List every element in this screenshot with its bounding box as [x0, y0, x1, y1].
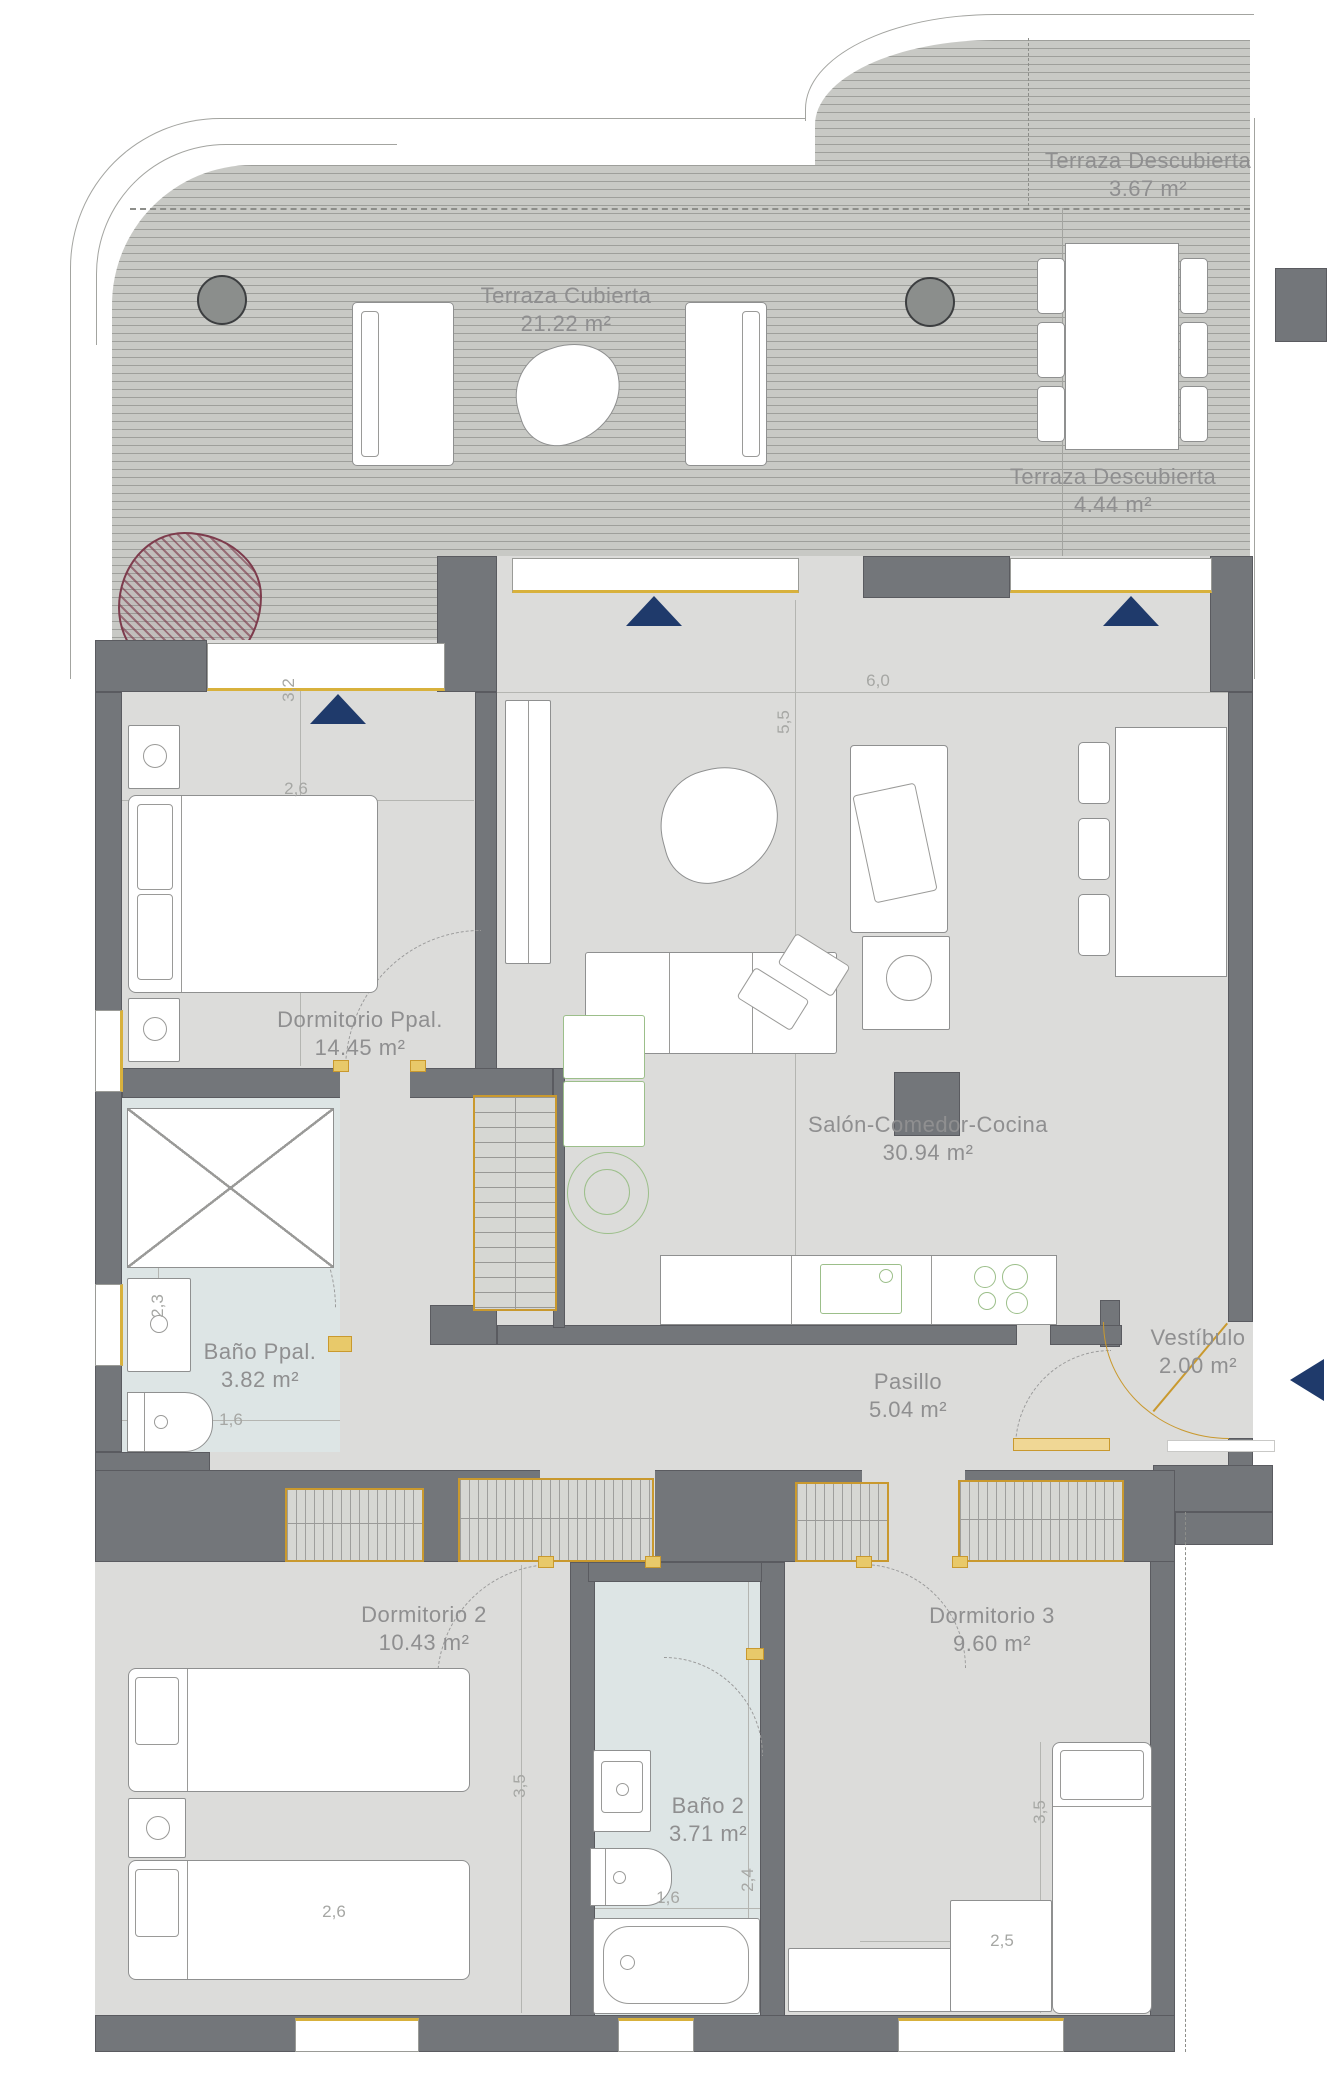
kitchen-appliance: [563, 1015, 645, 1079]
side-table: [862, 936, 950, 1030]
chair: [1078, 894, 1110, 956]
door-hinge: [952, 1556, 968, 1568]
wall: [570, 1562, 595, 2017]
door-hinge: [746, 1648, 764, 1660]
terrace-chair: [1037, 386, 1065, 442]
window-triangle-icon: [310, 694, 366, 724]
dimension-text: 3,5: [510, 1774, 530, 1798]
bed-single: [128, 1668, 470, 1792]
wall: [437, 556, 497, 692]
bathtub: [593, 1918, 760, 2014]
window: [207, 643, 445, 691]
room-label-dormitorio-3: Dormitorio 39.60 m²: [929, 1602, 1055, 1658]
lounge-chair: [850, 745, 948, 933]
dim-line: [593, 1908, 762, 1909]
toilet: [127, 1392, 213, 1452]
terrace-dining-table: [1065, 243, 1179, 450]
wall: [95, 640, 207, 692]
bed-double: [128, 795, 378, 993]
terrace-chair: [1037, 322, 1065, 378]
bed-single: [128, 1860, 470, 1980]
floor-plan: Terraza Descubierta3.67 m² Terraza Cubie…: [0, 0, 1327, 2088]
wall: [1150, 1512, 1175, 2052]
room-label-terraza-cubierta: Terraza Cubierta21.22 m²: [481, 282, 652, 338]
window: [898, 2018, 1064, 2052]
wall: [1210, 556, 1253, 692]
window: [512, 558, 799, 593]
dimension-text: 2,3: [148, 1294, 168, 1318]
dim-line: [497, 692, 1228, 693]
terrace-boundary-dash: [1028, 38, 1029, 206]
window-triangle-icon: [626, 596, 682, 626]
bathroom-sink: [593, 1750, 651, 1832]
door-leaf: [1013, 1438, 1110, 1451]
dimension-text: 2,4: [738, 1868, 758, 1892]
exterior-face-dash: [1185, 1512, 1186, 2052]
door-hinge: [645, 1556, 661, 1568]
wardrobe: [795, 1482, 889, 1562]
terrace-chair: [1180, 386, 1208, 442]
kitchen-sink: [820, 1264, 902, 1314]
wardrobe-hall: [473, 1095, 557, 1311]
chair: [1078, 742, 1110, 804]
terrace-armchair: [685, 302, 767, 466]
entrance-arrow-icon: [1290, 1359, 1324, 1401]
dimension-text: 2,6: [322, 1902, 346, 1922]
chair: [1078, 818, 1110, 880]
kitchen-appliance: [563, 1081, 645, 1147]
wall: [1228, 692, 1253, 1322]
wall: [497, 1325, 1017, 1345]
bed-single: [1052, 1742, 1152, 2014]
wall: [760, 1562, 785, 2017]
terrace-chair: [1037, 258, 1065, 314]
window: [95, 1010, 123, 1092]
dimension-text: 6,0: [866, 671, 890, 691]
dimension-text: 3,2: [279, 678, 299, 702]
room-label-terraza-descubierta-1: Terraza Descubierta3.67 m²: [1045, 147, 1251, 203]
desk-return: [950, 1900, 1052, 2012]
nightstand: [128, 1798, 186, 1858]
window: [95, 1284, 123, 1366]
room-label-terraza-descubierta-2: Terraza Descubierta4.44 m²: [1010, 463, 1216, 519]
wall: [122, 1068, 553, 1098]
terrace-chair: [1180, 322, 1208, 378]
terrace-cover-boundary: [130, 208, 1250, 210]
window-triangle-icon: [1103, 596, 1159, 626]
dining-table: [1115, 727, 1227, 977]
neighbor-wall-block: [1275, 268, 1327, 342]
entry-threshold: [1167, 1440, 1275, 1452]
desk: [788, 1948, 960, 2012]
wall-pillar: [863, 556, 1010, 598]
washing-machine: [567, 1152, 649, 1234]
wall: [430, 1305, 497, 1345]
dimension-text: 2,6: [284, 779, 308, 799]
sideboard: [505, 700, 551, 964]
room-label-salon: Salón-Comedor-Cocina30.94 m²: [808, 1111, 1048, 1167]
door-hinge: [538, 1556, 554, 1568]
window: [1010, 558, 1212, 593]
bathroom-sink: [127, 1278, 191, 1372]
room-label-pasillo: Pasillo5.04 m²: [869, 1368, 947, 1424]
nightstand: [128, 998, 180, 1062]
dimension-text: 3,5: [1030, 1800, 1050, 1824]
cooktop: [968, 1262, 1056, 1316]
door-hinge: [856, 1556, 872, 1568]
wall: [1175, 1512, 1273, 1545]
wardrobe: [958, 1480, 1124, 1562]
door-opening: [340, 1068, 410, 1098]
shower: [127, 1108, 334, 1268]
room-label-bano-ppal: Baño Ppal.3.82 m²: [204, 1338, 317, 1394]
terrace-armchair: [352, 302, 454, 466]
room-label-vestibulo: Vestíbulo2.00 m²: [1150, 1324, 1245, 1380]
wardrobe: [285, 1488, 424, 1562]
room-label-dormitorio-ppal: Dormitorio Ppal.14.45 m²: [277, 1006, 443, 1062]
column: [197, 275, 247, 325]
dimension-text: 5,5: [774, 710, 794, 734]
room-label-bano-2: Baño 23.71 m²: [669, 1792, 747, 1848]
window: [295, 2018, 419, 2052]
column: [905, 277, 955, 327]
terrace-chair: [1180, 258, 1208, 314]
door-hinge: [328, 1336, 352, 1352]
window: [618, 2018, 694, 2052]
dimension-text: 1,6: [656, 1888, 680, 1908]
room-label-dormitorio-2: Dormitorio 210.43 m²: [361, 1601, 487, 1657]
dimension-text: 2,5: [990, 1931, 1014, 1951]
nightstand: [128, 725, 180, 789]
wardrobe: [458, 1478, 654, 1562]
dimension-text: 1,6: [219, 1410, 243, 1430]
wall: [588, 1562, 762, 1582]
